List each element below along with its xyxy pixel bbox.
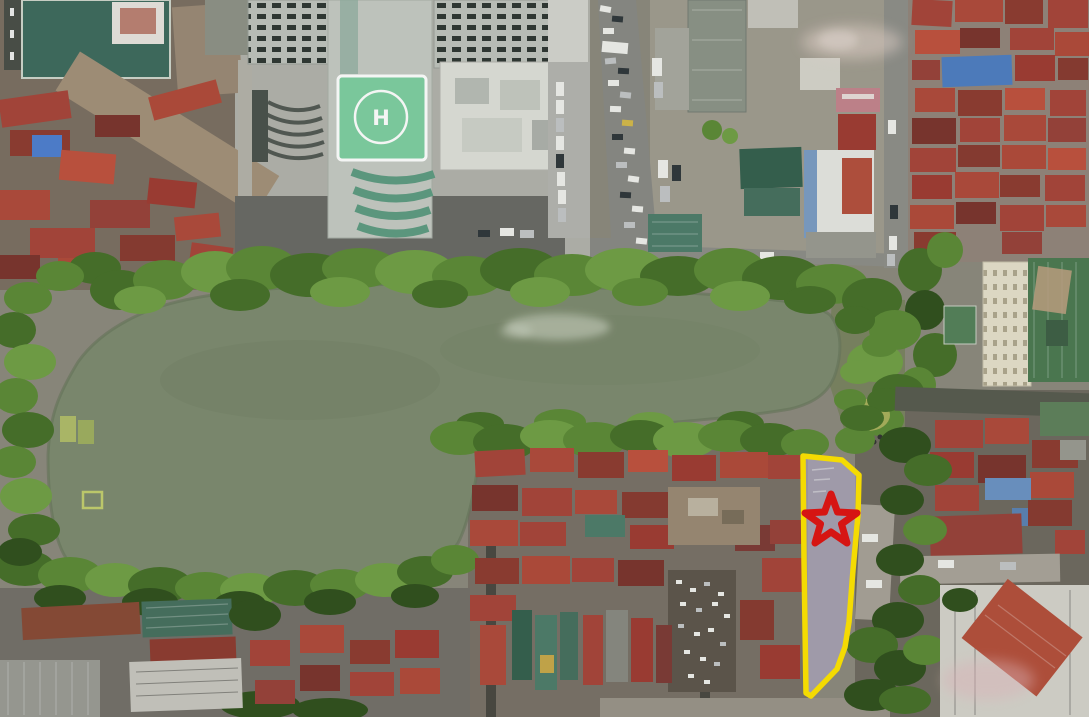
aerial-photo-canvas: H (0, 0, 1089, 717)
photo-tint-overlay (0, 0, 1089, 717)
